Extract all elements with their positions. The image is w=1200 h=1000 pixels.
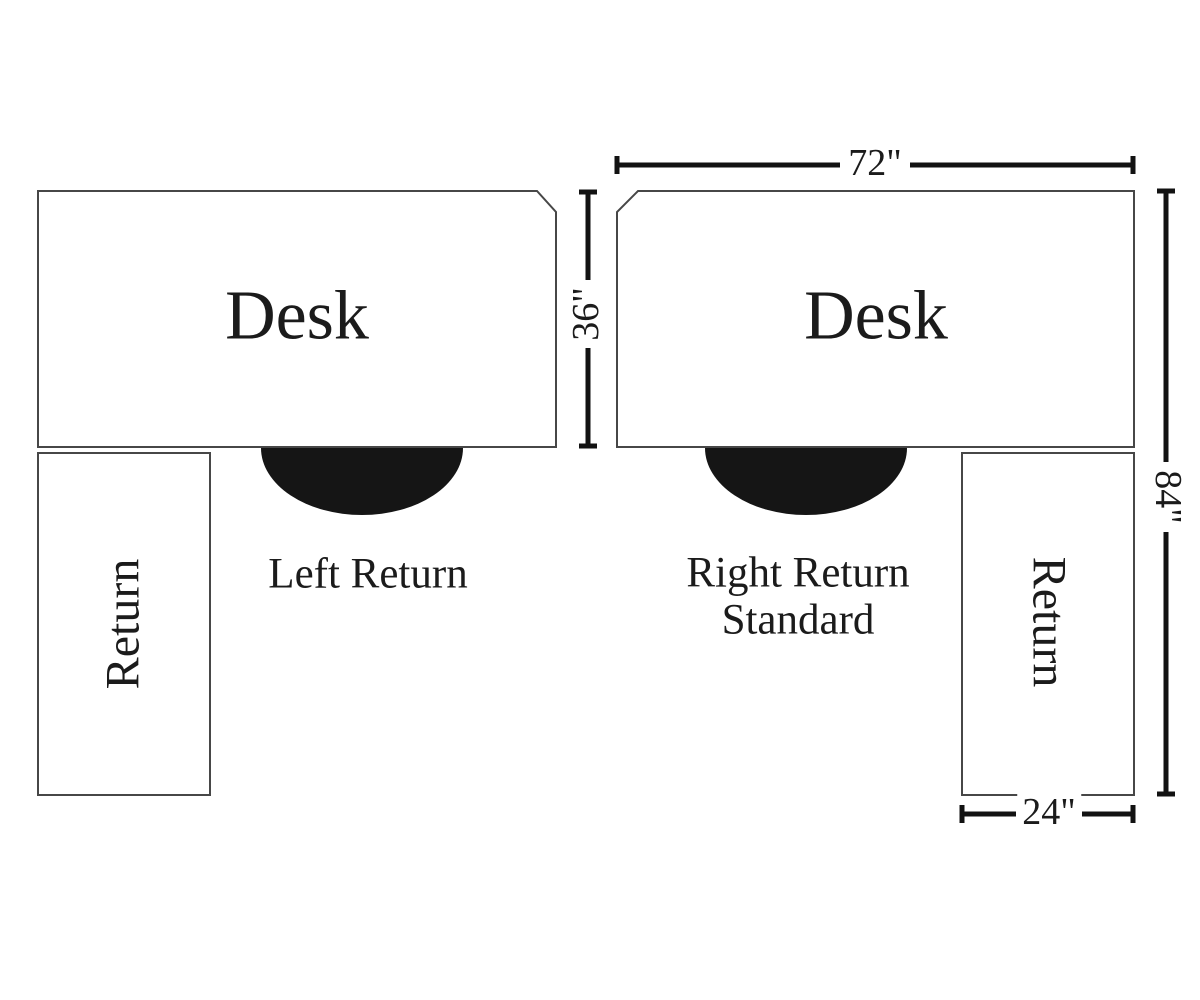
desk-width-dimension-label: 72"	[843, 143, 907, 185]
left-desk-label: Desk	[225, 278, 369, 355]
left-configuration-caption: Left Return	[268, 550, 467, 597]
left-return-label: Return	[98, 559, 151, 690]
return-width-dimension-label: 24"	[1017, 792, 1081, 834]
right-configuration-caption: Right Return Standard	[686, 550, 909, 645]
desk-depth-dimension-label: 36"	[566, 282, 608, 346]
right-configuration-caption-line2: Standard	[686, 597, 909, 644]
desk-configuration-diagram: Desk Return Left Return Desk Return Righ…	[0, 0, 1200, 1000]
right-configuration-caption-line1: Right Return	[686, 550, 909, 597]
left-chair-symbol	[261, 448, 463, 515]
right-return-label: Return	[1022, 557, 1075, 688]
total-depth-dimension-label: 84"	[1146, 465, 1188, 529]
right-chair-symbol	[705, 448, 907, 515]
diagram-shapes-layer	[0, 0, 1200, 1000]
right-desk-label: Desk	[804, 278, 948, 355]
